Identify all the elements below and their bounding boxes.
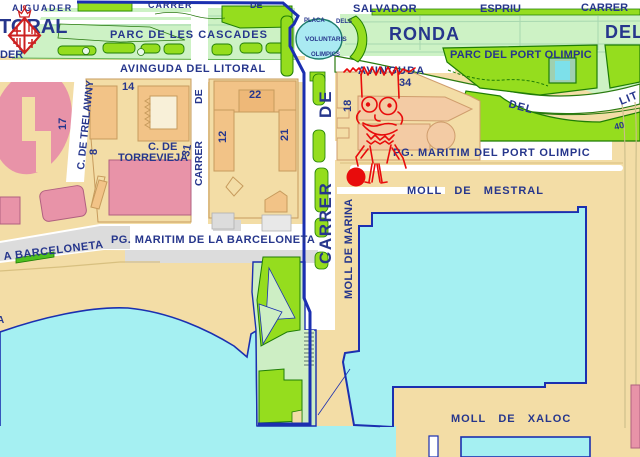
svg-text:AVINGUDA DEL LITORAL: AVINGUDA DEL LITORAL bbox=[120, 63, 266, 75]
svg-text:8: 8 bbox=[88, 149, 100, 155]
svg-text:PG. MARITIM DEL PORT OLIMPIC: PG. MARITIM DEL PORT OLIMPIC bbox=[393, 147, 590, 159]
svg-text:MOLL DE XALOC: MOLL DE XALOC bbox=[451, 413, 571, 425]
svg-text:21: 21 bbox=[279, 129, 291, 141]
svg-text:ESPRIU: ESPRIU bbox=[480, 3, 521, 15]
svg-text:OLIMPICS: OLIMPICS bbox=[311, 52, 340, 58]
svg-text:PG. MARITIM DE LA BARCELONETA: PG. MARITIM DE LA BARCELONETA bbox=[111, 234, 315, 246]
svg-text:CARRER: CARRER bbox=[193, 141, 205, 186]
svg-text:MOLL DE MARINA: MOLL DE MARINA bbox=[343, 198, 355, 299]
svg-text:TORREVIEJA: TORREVIEJA bbox=[118, 152, 188, 164]
svg-text:12: 12 bbox=[217, 131, 229, 143]
svg-text:MOLL DE MESTRAL: MOLL DE MESTRAL bbox=[407, 185, 544, 197]
svg-text:DEL: DEL bbox=[605, 22, 640, 42]
svg-text:DE: DE bbox=[316, 88, 335, 118]
svg-text:PARC DEL PORT OLIMPIC: PARC DEL PORT OLIMPIC bbox=[450, 49, 592, 61]
svg-text:CARRER: CARRER bbox=[148, 0, 193, 10]
svg-text:AIGUADER: AIGUADER bbox=[12, 3, 73, 13]
svg-text:34: 34 bbox=[399, 77, 412, 89]
svg-text:PARC DE LES CASCADES: PARC DE LES CASCADES bbox=[110, 29, 268, 41]
svg-text:DER: DER bbox=[0, 49, 23, 61]
svg-text:17: 17 bbox=[57, 118, 69, 130]
svg-text:31: 31 bbox=[180, 143, 194, 157]
svg-text:DE: DE bbox=[250, 0, 263, 10]
svg-text:CARRER: CARRER bbox=[581, 2, 628, 14]
svg-text:PLACA: PLACA bbox=[304, 18, 325, 24]
svg-text:A: A bbox=[0, 315, 4, 326]
svg-text:SALVADOR: SALVADOR bbox=[353, 3, 417, 15]
svg-text:CARRER: CARRER bbox=[316, 182, 335, 264]
svg-text:18: 18 bbox=[342, 100, 354, 112]
svg-text:14: 14 bbox=[122, 81, 135, 93]
svg-text:DE: DE bbox=[193, 89, 205, 104]
svg-text:VOLUNTARIS: VOLUNTARIS bbox=[305, 36, 347, 43]
svg-text:22: 22 bbox=[249, 89, 261, 101]
svg-text:RONDA: RONDA bbox=[389, 24, 460, 44]
svg-text:DELS: DELS bbox=[336, 19, 352, 25]
